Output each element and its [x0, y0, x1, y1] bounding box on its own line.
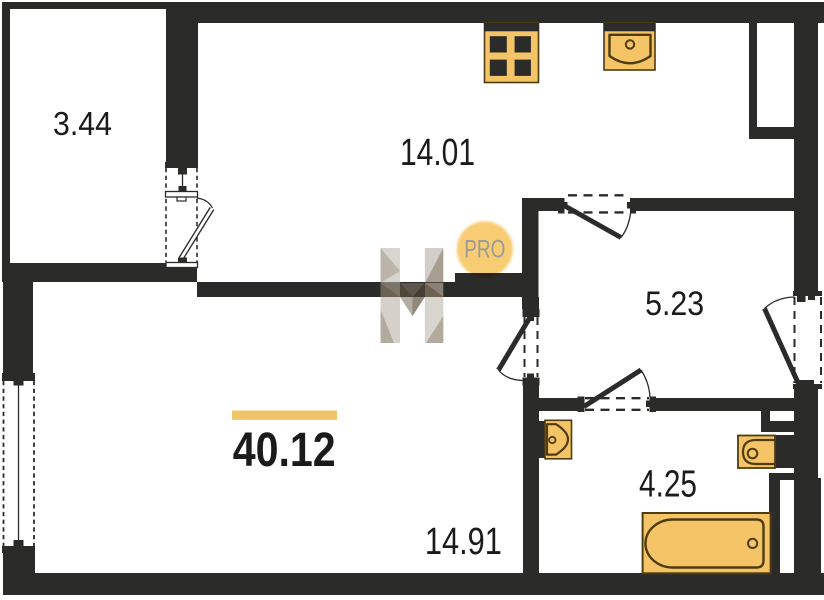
svg-text:14.91: 14.91 [425, 521, 502, 563]
svg-text:PRO: PRO [464, 236, 505, 264]
svg-text:14.01: 14.01 [400, 132, 475, 174]
svg-text:3.44: 3.44 [53, 106, 112, 143]
svg-text:4.25: 4.25 [639, 464, 697, 506]
svg-text:40.12: 40.12 [233, 424, 336, 477]
svg-text:5.23: 5.23 [645, 285, 704, 323]
